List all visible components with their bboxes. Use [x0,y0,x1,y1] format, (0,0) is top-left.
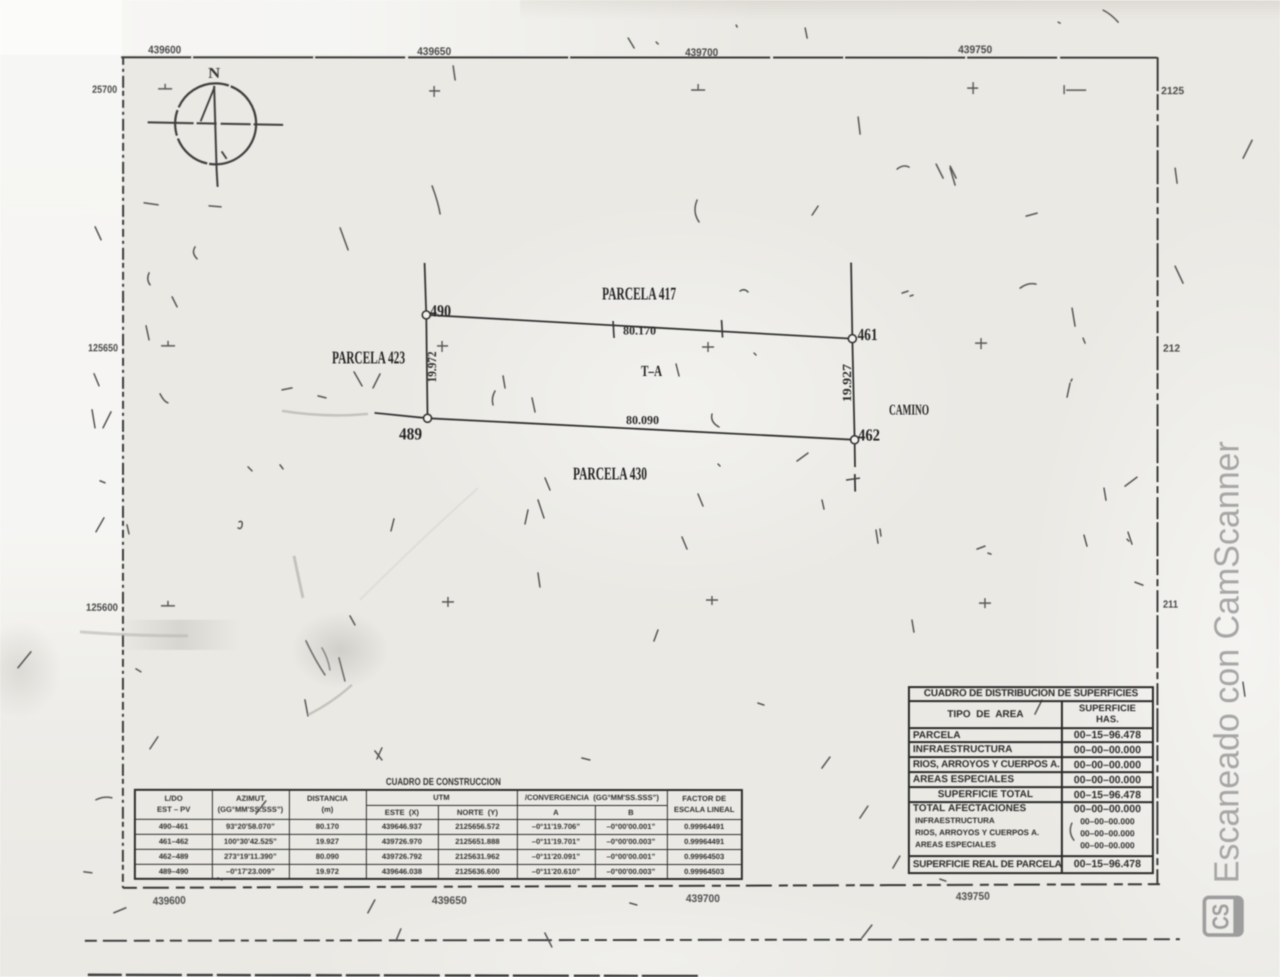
svg-text:CS: CS [1207,904,1233,930]
svg-text:Escaneado con CamScanner: Escaneado con CamScanner [1207,441,1246,883]
